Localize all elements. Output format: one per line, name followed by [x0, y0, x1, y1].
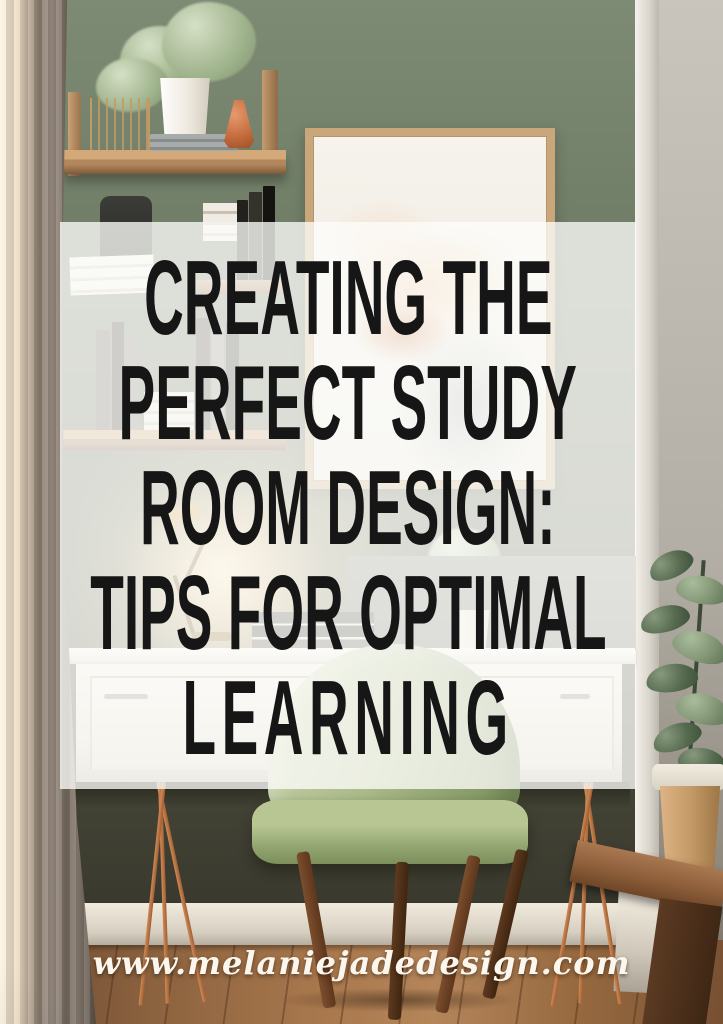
- shelf-side-panel: [262, 70, 278, 162]
- floor-plant-pot: [658, 786, 722, 870]
- title-line-5: LEARNING: [182, 663, 513, 774]
- title-overlay-panel: CREATING THE PERFECT STUDY ROOM DESIGN: …: [60, 222, 636, 789]
- title-line-1: CREATING THE: [144, 243, 552, 354]
- chair-seat: [252, 800, 528, 864]
- book-stack: [150, 134, 238, 151]
- wall-shelf: [64, 150, 286, 174]
- title-line-4: TIPS FOR OPTIMAL: [90, 558, 606, 669]
- wire-basket: [90, 98, 150, 154]
- white-plant-pot: [158, 78, 212, 136]
- website-caption: www.melaniejadedesign.com: [0, 944, 723, 982]
- title-line-2: PERFECT STUDY: [119, 348, 577, 459]
- title-line-3: ROOM DESIGN:: [140, 453, 556, 564]
- pin-graphic: CREATING THE PERFECT STUDY ROOM DESIGN: …: [0, 0, 723, 1024]
